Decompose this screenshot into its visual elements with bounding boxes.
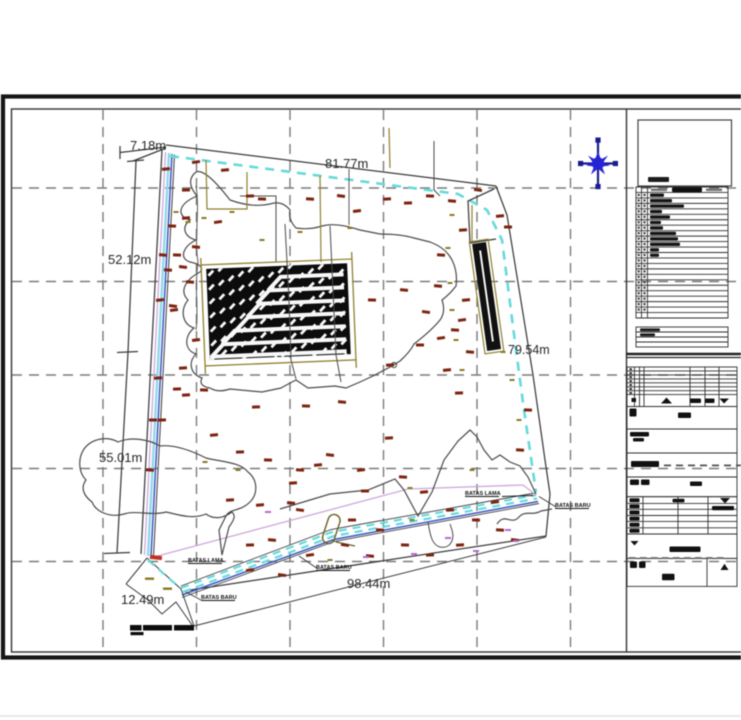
- svg-text:12.49m: 12.49m: [121, 592, 164, 607]
- svg-text:81.77m: 81.77m: [325, 156, 368, 171]
- svg-text:98.44m: 98.44m: [347, 576, 390, 591]
- svg-text:55.01m: 55.01m: [99, 450, 142, 465]
- svg-text:52.12m: 52.12m: [108, 252, 151, 267]
- svg-text:79.54m: 79.54m: [508, 343, 550, 357]
- svg-text:7.18m: 7.18m: [130, 138, 166, 153]
